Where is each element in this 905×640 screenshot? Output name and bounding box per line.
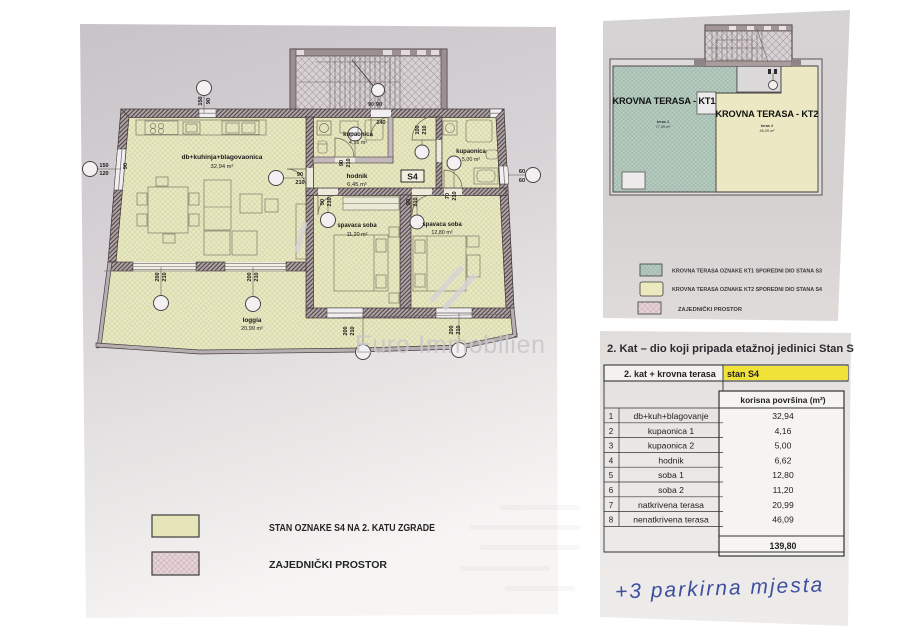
svg-text:90: 90 bbox=[368, 102, 374, 108]
svg-text:210: 210 bbox=[162, 272, 168, 281]
svg-text:8: 8 bbox=[609, 516, 614, 525]
svg-text:ZAJEDNIČKI PROSTOR: ZAJEDNIČKI PROSTOR bbox=[678, 306, 743, 313]
svg-text:6,45 m²: 6,45 m² bbox=[347, 182, 367, 188]
svg-text:210: 210 bbox=[346, 158, 352, 167]
svg-text:100: 100 bbox=[415, 125, 421, 134]
svg-text:120: 120 bbox=[99, 171, 108, 177]
svg-text:2: 2 bbox=[609, 427, 614, 436]
svg-text:hodnik: hodnik bbox=[658, 455, 684, 465]
svg-text:5,00 m²: 5,00 m² bbox=[462, 157, 480, 163]
svg-text:11,20: 11,20 bbox=[773, 485, 794, 495]
svg-text:KROVNA TERASA OZNAKE KT1 SPORE: KROVNA TERASA OZNAKE KT1 SPOREDNI DIO ST… bbox=[672, 269, 823, 275]
svg-text:kupaonica 2: kupaonica 2 bbox=[648, 441, 695, 451]
svg-text:korisna površina (m²): korisna površina (m²) bbox=[740, 395, 825, 405]
svg-text:90: 90 bbox=[406, 199, 412, 205]
svg-text:hodnik: hodnik bbox=[347, 173, 368, 180]
svg-text:210: 210 bbox=[413, 197, 419, 206]
svg-text:spavaca soba: spavaca soba bbox=[422, 222, 462, 228]
svg-text:4,16 m²: 4,16 m² bbox=[349, 140, 367, 146]
svg-text:5,00: 5,00 bbox=[775, 441, 792, 451]
svg-text:210: 210 bbox=[452, 191, 458, 200]
svg-text:6,62: 6,62 bbox=[775, 455, 792, 465]
svg-text:200: 200 bbox=[155, 272, 161, 281]
svg-text:db+kuhinja+blagovaonica: db+kuhinja+blagovaonica bbox=[182, 154, 263, 161]
svg-text:32,94 m²: 32,94 m² bbox=[211, 164, 234, 170]
svg-text:natkrivena terasa: natkrivena terasa bbox=[638, 500, 704, 510]
svg-text:1: 1 bbox=[609, 412, 614, 421]
svg-text:150: 150 bbox=[99, 163, 108, 169]
svg-text:20,99 m²: 20,99 m² bbox=[241, 326, 263, 332]
svg-text:20,99: 20,99 bbox=[772, 500, 794, 510]
svg-text:60: 60 bbox=[519, 169, 525, 175]
svg-text:soba 1: soba 1 bbox=[658, 470, 684, 480]
svg-text:db+kuh+blagovanje: db+kuh+blagovanje bbox=[633, 411, 708, 421]
svg-text:12,80: 12,80 bbox=[772, 470, 794, 480]
svg-text:11,20 m²: 11,20 m² bbox=[347, 232, 368, 238]
svg-text:210: 210 bbox=[254, 272, 260, 281]
svg-text:77,49 m²: 77,49 m² bbox=[656, 125, 672, 129]
svg-text:200: 200 bbox=[343, 326, 349, 335]
svg-text:6: 6 bbox=[609, 486, 614, 495]
svg-text:nenatkrivena terasa: nenatkrivena terasa bbox=[633, 515, 709, 525]
svg-text:90: 90 bbox=[339, 160, 345, 166]
svg-text:139,80: 139,80 bbox=[770, 541, 797, 551]
svg-text:90: 90 bbox=[376, 102, 382, 108]
svg-text:S4: S4 bbox=[407, 172, 418, 182]
svg-text:2. Kat – dio koji pripada et: 2. Kat – dio koji pripada etažnoj jedini… bbox=[607, 343, 854, 355]
svg-text:90: 90 bbox=[297, 172, 303, 178]
svg-text:7: 7 bbox=[609, 501, 614, 510]
svg-text:150: 150 bbox=[198, 96, 204, 105]
svg-text:3: 3 bbox=[609, 442, 614, 451]
svg-text:12,80 m²: 12,80 m² bbox=[431, 230, 452, 236]
svg-text:2. kat + krovna terasa: 2. kat + krovna terasa bbox=[624, 369, 717, 379]
svg-text:90: 90 bbox=[320, 199, 326, 205]
svg-text:46,09 m²: 46,09 m² bbox=[760, 129, 776, 133]
svg-text:90: 90 bbox=[206, 98, 212, 104]
svg-text:stan S4: stan S4 bbox=[727, 369, 759, 379]
svg-text:kupaonica 1: kupaonica 1 bbox=[648, 426, 695, 436]
svg-text:200: 200 bbox=[247, 272, 253, 281]
svg-text:kupaonica: kupaonica bbox=[456, 149, 486, 155]
svg-text:teras 1: teras 1 bbox=[657, 120, 669, 124]
svg-text:210: 210 bbox=[295, 180, 304, 186]
svg-text:KROVNA TERASA - KT1: KROVNA TERASA - KT1 bbox=[613, 96, 716, 106]
svg-text:46,09: 46,09 bbox=[772, 515, 794, 525]
svg-text:4,16: 4,16 bbox=[775, 426, 792, 436]
svg-text:KROVNA TERASA OZNAKE KT2 SPORE: KROVNA TERASA OZNAKE KT2 SPOREDNI DIO ST… bbox=[672, 287, 823, 293]
svg-text:210: 210 bbox=[327, 197, 333, 206]
svg-text:ZAJEDNIČKI PROSTOR: ZAJEDNIČKI PROSTOR bbox=[269, 559, 387, 571]
svg-text:teras 2: teras 2 bbox=[761, 124, 773, 128]
svg-text:soba 2: soba 2 bbox=[658, 485, 684, 495]
svg-text:spavaca soba: spavaca soba bbox=[337, 223, 377, 229]
svg-text:loggia: loggia bbox=[243, 317, 262, 324]
svg-text:5: 5 bbox=[609, 471, 614, 480]
svg-text:60: 60 bbox=[519, 178, 525, 184]
svg-text:210: 210 bbox=[422, 125, 428, 134]
svg-text:Euro Immobilien: Euro Immobilien bbox=[355, 331, 545, 359]
svg-text:kupaonica: kupaonica bbox=[343, 132, 373, 138]
svg-text:STAN OZNAKE S4 NA 2. KATU ZGRA: STAN OZNAKE S4 NA 2. KATU ZGRADE bbox=[269, 523, 435, 534]
svg-text:90: 90 bbox=[123, 163, 129, 169]
svg-text:4: 4 bbox=[609, 456, 614, 465]
svg-text:70: 70 bbox=[445, 193, 451, 199]
svg-text:KROVNA TERASA - KT2: KROVNA TERASA - KT2 bbox=[716, 109, 819, 119]
svg-text:32,94: 32,94 bbox=[772, 411, 794, 421]
svg-text:140: 140 bbox=[376, 120, 385, 126]
